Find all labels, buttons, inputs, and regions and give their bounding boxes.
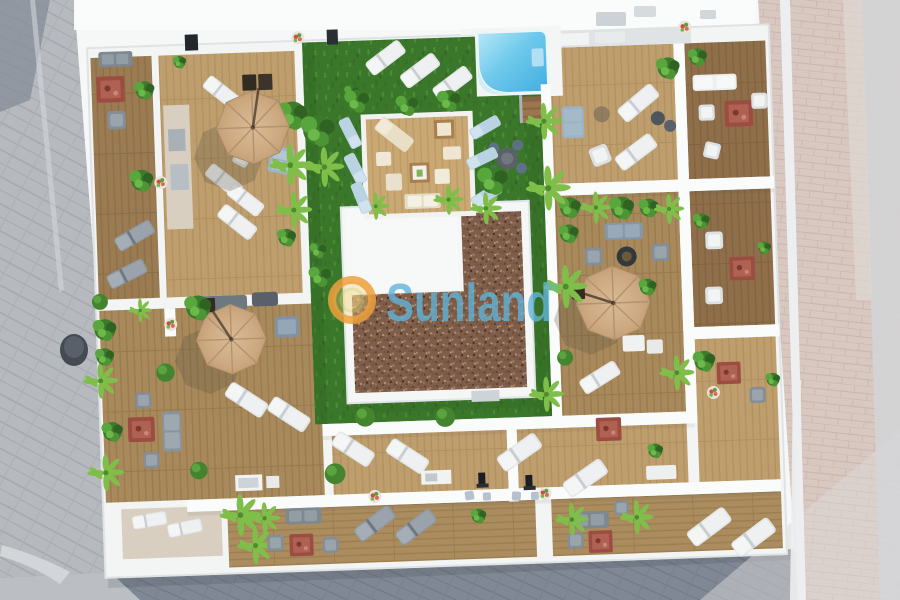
- svg-text:®: ®: [550, 282, 558, 294]
- svg-text:Sunland: Sunland: [386, 273, 552, 333]
